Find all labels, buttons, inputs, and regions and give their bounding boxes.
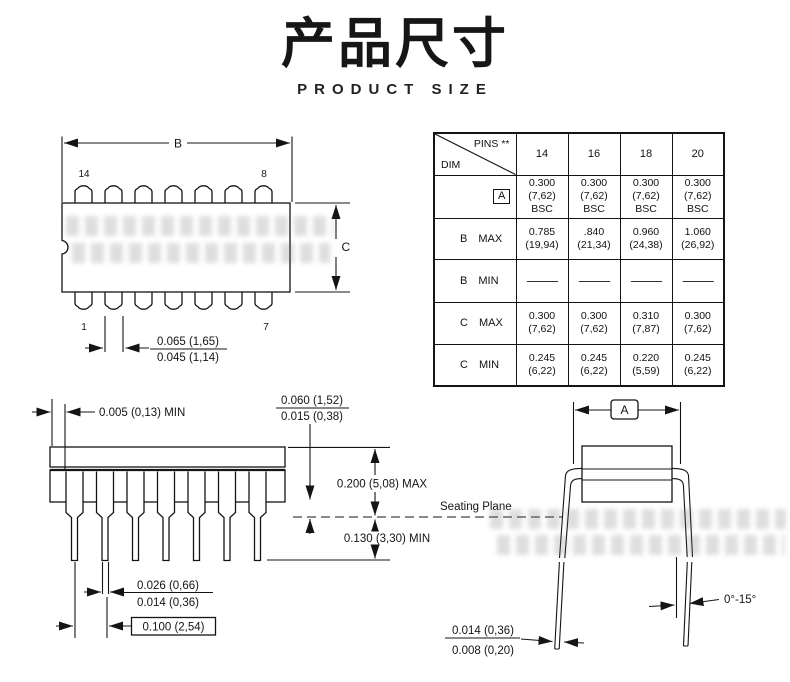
end-view-package xyxy=(555,446,693,649)
seating-plane-label: Seating Plane xyxy=(440,501,512,513)
top-pin-row xyxy=(75,186,272,203)
row-label-cmin: C xyxy=(460,359,468,371)
table-header-row: PINS ** DIM 14 16 18 20 xyxy=(434,133,724,175)
cell-bmin-20: — xyxy=(672,259,724,302)
cell-cmin-20: 0.245(6,22) xyxy=(672,344,724,386)
lead-angle-value: 0°-15° xyxy=(724,594,756,606)
pin xyxy=(105,186,122,203)
dim-lead-width: 0.065 (1,65) 0.045 (1,14) xyxy=(85,316,227,364)
cell-cmin-16: 0.245(6,22) xyxy=(568,344,620,386)
pin xyxy=(97,472,114,561)
dim-edge-gap: 0.005 (0,13) MIN xyxy=(32,399,185,469)
product-size-page: 产品尺寸 PRODUCT SIZE xyxy=(0,0,790,682)
table-corner-cell: PINS ** DIM xyxy=(434,133,516,175)
row-label-cmax: C xyxy=(460,317,468,329)
seating-plane: Seating Plane xyxy=(293,501,562,517)
lead-below-value: 0.130 (3,30) MIN xyxy=(344,533,430,545)
table-row: CMIN 0.245(6,22) 0.245(6,22) 0.220(5,59)… xyxy=(434,344,724,386)
pin xyxy=(135,292,152,309)
pitch-value: 0.100 (2,54) xyxy=(142,622,204,634)
lead-thickness-min: 0.008 (0,20) xyxy=(452,645,514,657)
lead-thickness-max: 0.014 (0,36) xyxy=(452,625,514,637)
table-row: A 0.300(7,62)BSC 0.300(7,62)BSC 0.300(7,… xyxy=(434,175,724,218)
dim-c-label: C xyxy=(342,240,351,254)
cell-bmax-14: 0.785(19,94) xyxy=(516,218,568,259)
dimension-table: PINS ** DIM 14 16 18 20 A 0.300(7,62)BSC… xyxy=(433,132,725,387)
col-header-14: 14 xyxy=(516,133,568,175)
body-cap xyxy=(50,447,285,467)
dip-top-view-drawing: B C 14 8 1 7 0.065 (1,65) 0.045 (1,14) xyxy=(40,130,360,368)
page-title-english: PRODUCT SIZE xyxy=(0,81,790,98)
col-header-18: 18 xyxy=(620,133,672,175)
side-lead-width-min: 0.014 (0,36) xyxy=(137,597,199,609)
dip-side-and-end-view-drawing: 0.005 (0,13) MIN 0.060 (1,52) 0.015 (0,3… xyxy=(20,392,790,660)
cell-bmax-16: .840(21,34) xyxy=(568,218,620,259)
edge-gap-value: 0.005 (0,13) MIN xyxy=(99,407,185,419)
pin xyxy=(75,292,92,309)
end-body xyxy=(582,446,672,502)
pin xyxy=(188,472,205,561)
cell-cmin-18: 0.220(5,59) xyxy=(620,344,672,386)
dim-lead-angle: 0°-15° xyxy=(649,594,756,607)
table-row: BMAX 0.785(19,94) .840(21,34) 0.960(24,3… xyxy=(434,218,724,259)
pin xyxy=(219,472,236,561)
dim-side-lead-width: 0.026 (0,66) 0.014 (0,36) xyxy=(84,562,213,609)
dim-lead-below: 0.130 (3,30) MIN xyxy=(267,520,436,561)
cell-cmax-20: 0.300(7,62) xyxy=(672,302,724,344)
lead-width-min: 0.045 (1,14) xyxy=(157,352,219,364)
table-row: BMIN — — — — xyxy=(434,259,724,302)
cell-cmin-14: 0.245(6,22) xyxy=(516,344,568,386)
right-leg xyxy=(672,468,693,646)
pin xyxy=(158,472,175,561)
pin-14-label: 14 xyxy=(78,169,90,180)
pin xyxy=(165,292,182,309)
dim-standoff: 0.060 (1,52) 0.015 (0,38) xyxy=(276,395,349,534)
row-qual: MAX xyxy=(478,233,502,245)
left-leg xyxy=(555,468,582,649)
side-pins xyxy=(66,472,266,561)
pin xyxy=(127,472,144,561)
cell-a-20: 0.300(7,62)BSC xyxy=(672,175,724,218)
top-view-package xyxy=(61,186,290,309)
pin xyxy=(225,186,242,203)
standoff-min: 0.015 (0,38) xyxy=(281,411,343,423)
pin xyxy=(255,292,272,309)
bottom-pin-row xyxy=(75,292,272,309)
row-qual: MAX xyxy=(479,317,503,329)
pin xyxy=(105,292,122,309)
cell-cmax-14: 0.300(7,62) xyxy=(516,302,568,344)
pin xyxy=(249,472,266,561)
cell-a-14: 0.300(7,62)BSC xyxy=(516,175,568,218)
corner-pins-label: PINS ** xyxy=(474,138,510,150)
row-qual: MIN xyxy=(479,359,499,371)
pin xyxy=(135,186,152,203)
col-header-20: 20 xyxy=(672,133,724,175)
pin xyxy=(165,186,182,203)
notch-mask xyxy=(61,241,64,254)
table-row: CMAX 0.300(7,62) 0.300(7,62) 0.310(7,87)… xyxy=(434,302,724,344)
package-body xyxy=(62,203,290,292)
dim-a: A xyxy=(574,400,681,464)
cell-a-16: 0.300(7,62)BSC xyxy=(568,175,620,218)
cell-bmax-20: 1.060(26,92) xyxy=(672,218,724,259)
pin-7-label: 7 xyxy=(263,322,269,333)
dim-a-label: A xyxy=(620,403,628,417)
pin xyxy=(75,186,92,203)
cell-cmax-16: 0.300(7,62) xyxy=(568,302,620,344)
dim-c: C xyxy=(295,203,351,292)
pin xyxy=(195,186,212,203)
side-view-package xyxy=(50,447,285,561)
body-height-value: 0.200 (5,08) MAX xyxy=(337,479,427,491)
row-label-bmin: B xyxy=(460,275,467,287)
pin xyxy=(66,472,83,561)
lead-width-max: 0.065 (1,65) xyxy=(157,336,219,348)
cell-a-18: 0.300(7,62)BSC xyxy=(620,175,672,218)
pin-1-label: 1 xyxy=(81,322,87,333)
row-label-bmax: B xyxy=(460,233,467,245)
pin-8-label: 8 xyxy=(261,169,267,180)
pin xyxy=(225,292,242,309)
col-header-16: 16 xyxy=(568,133,620,175)
page-title-chinese: 产品尺寸 xyxy=(0,14,790,73)
standoff-max: 0.060 (1,52) xyxy=(281,395,343,407)
page-header: 产品尺寸 PRODUCT SIZE xyxy=(0,14,790,98)
cell-cmax-18: 0.310(7,87) xyxy=(620,302,672,344)
row-label-a: A xyxy=(493,189,510,204)
corner-dim-label: DIM xyxy=(441,159,460,171)
dim-b-label: B xyxy=(174,137,182,151)
pin xyxy=(195,292,212,309)
dim-lead-thickness: 0.014 (0,36) 0.008 (0,20) xyxy=(445,625,584,657)
cell-bmax-18: 0.960(24,38) xyxy=(620,218,672,259)
side-lead-width-max: 0.026 (0,66) xyxy=(137,580,199,592)
pin xyxy=(255,186,272,203)
